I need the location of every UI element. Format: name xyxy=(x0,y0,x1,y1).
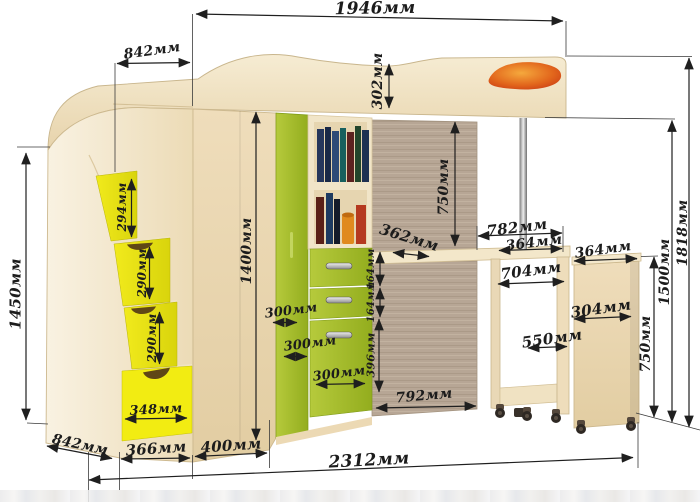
wardrobe-door xyxy=(276,113,308,438)
dim-stair-drawer-width: 348мм xyxy=(129,402,182,418)
dim-drawer2-height: 164мм xyxy=(367,282,377,323)
dim-step1-height: 294мм xyxy=(116,183,128,232)
dim-bed-platform-height: 1500мм xyxy=(658,239,672,306)
dim-wardrobe-height: 1400мм xyxy=(240,218,254,285)
furniture-dimension-diagram: 1946мм 842мм 302мм 750мм 362мм 782мм 364… xyxy=(0,0,700,502)
dim-bed-length: 1946мм xyxy=(334,0,415,18)
cropped-thumbnail-strip xyxy=(0,490,700,502)
dim-stair-unit-height: 1450мм xyxy=(9,258,24,329)
casters xyxy=(495,404,561,423)
dim-stair-unit-width: 366мм xyxy=(125,439,187,458)
dim-total-length: 2312мм xyxy=(328,450,410,471)
dim-step2-height: 290мм xyxy=(136,249,148,298)
bookshelf xyxy=(308,115,372,249)
dim-corner-section-width: 400мм xyxy=(200,436,262,455)
dim-step3-height: 290мм xyxy=(146,314,158,363)
side-cabinet xyxy=(572,253,641,434)
under-bed-back-panel xyxy=(372,120,477,416)
dim-drawer3-height: 396мм xyxy=(366,333,377,378)
dim-under-bed-clearance: 750мм xyxy=(437,159,451,216)
dim-headboard-height: 302мм xyxy=(371,53,385,110)
dim-total-height-right: 1818мм xyxy=(676,200,690,267)
drawer-stack xyxy=(310,248,372,417)
dim-side-cabinet-height: 750мм xyxy=(639,316,653,373)
